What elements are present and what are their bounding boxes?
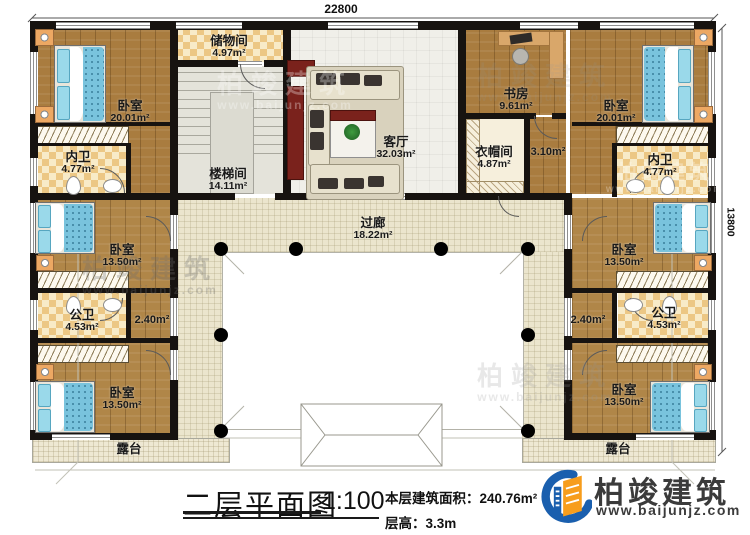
plant	[344, 124, 360, 140]
bed	[650, 381, 710, 433]
window	[328, 22, 418, 29]
floor-height-text: 层高：3.3m	[385, 512, 456, 532]
corridor-area-240-left: 2.40m²	[135, 314, 170, 326]
room-label-bath-mid-left: 公卫4.53m²	[65, 308, 98, 334]
wall	[458, 21, 466, 200]
wall	[264, 60, 283, 67]
sofa-cushion	[340, 73, 360, 85]
sink	[103, 298, 122, 312]
nightstand	[694, 255, 712, 271]
room-label-terrace-right: 露台	[605, 442, 630, 456]
title-underline	[183, 517, 379, 519]
column	[434, 242, 448, 256]
plan-scale: 1:100	[322, 487, 385, 516]
wardrobe-strip	[35, 345, 129, 363]
bed	[54, 45, 106, 123]
wardrobe-strip	[616, 345, 711, 363]
dimension-right: 13800	[725, 207, 737, 236]
wall	[126, 143, 131, 197]
room-label-cloakroom: 衣帽间4.87m²	[475, 145, 513, 171]
room-label-study: 书房9.61m²	[499, 87, 532, 113]
title-underline	[183, 511, 321, 514]
wall	[30, 193, 172, 200]
sink	[626, 179, 645, 193]
door-opening	[170, 298, 178, 336]
room-label-terrace-left: 露台	[116, 442, 141, 456]
wall	[126, 291, 131, 343]
column	[521, 424, 535, 438]
nightstand	[36, 364, 54, 380]
wall	[572, 338, 716, 343]
sofa-cushion	[344, 178, 364, 189]
wall	[572, 288, 716, 293]
column	[289, 242, 303, 256]
column	[214, 328, 228, 342]
room-label-bedroom-mid-right: 卧室13.50m²	[604, 243, 643, 269]
desk-chair	[512, 48, 529, 65]
column	[214, 242, 228, 256]
wall	[178, 60, 238, 67]
corridor-gallery	[522, 252, 568, 442]
wall	[30, 288, 172, 293]
bed	[35, 381, 95, 433]
room-label-bath-top-right: 内卫4.77m²	[643, 153, 676, 179]
wall	[612, 291, 617, 343]
floor-plan-canvas: 柏竣建筑 www.baijunjz.com 柏竣建筑 www.baijunjz.…	[0, 0, 750, 535]
window	[520, 22, 578, 29]
window	[176, 22, 242, 29]
door-opening	[170, 350, 178, 380]
nightstand	[35, 29, 54, 46]
table-runner	[330, 110, 376, 121]
door-opening	[170, 215, 178, 249]
column	[521, 242, 535, 256]
room-label-bedroom-top-right: 卧室20.01m²	[596, 99, 635, 125]
room-label-bedroom-bottom-right: 卧室13.50m²	[604, 383, 643, 409]
nightstand	[36, 255, 54, 271]
desk	[549, 31, 564, 79]
window	[30, 300, 38, 330]
room-label-storage: 储物间4.97m²	[210, 34, 248, 60]
corridor-area-240-right: 2.40m²	[571, 314, 606, 326]
wall	[30, 143, 130, 146]
window	[636, 434, 694, 440]
sofa-cushion	[364, 75, 382, 86]
logo-icon	[538, 468, 592, 526]
nightstand	[694, 364, 712, 380]
floor-area-text: 本层建筑面积：240.76m²	[385, 487, 537, 507]
room-label-bath-mid-right: 公卫4.53m²	[647, 306, 680, 332]
wall	[30, 338, 172, 343]
column	[214, 424, 228, 438]
sofa-cushion	[310, 132, 324, 150]
logo-url: www.baijunjz.com	[596, 502, 741, 518]
room-label-bedroom-bottom-left: 卧室13.50m²	[102, 386, 141, 412]
toilet	[66, 176, 81, 195]
room-label-bath-top-left: 内卫4.77m²	[61, 150, 94, 176]
room-label-stairwell: 楼梯间14.11m²	[209, 167, 248, 193]
wall	[170, 21, 178, 193]
door-opening	[564, 215, 572, 249]
nightstand	[694, 29, 713, 46]
courtyard-void	[222, 252, 524, 430]
wall	[612, 143, 617, 197]
sofa-cushion	[316, 73, 336, 85]
corridor-gallery	[172, 252, 222, 442]
window	[52, 434, 110, 440]
window	[30, 158, 38, 186]
sofa-cushion	[310, 110, 324, 128]
bed	[653, 202, 711, 254]
window	[56, 22, 150, 29]
bed	[35, 202, 95, 254]
sofa-cushion	[368, 176, 384, 187]
nightstand	[694, 106, 713, 123]
sofa-cushion	[318, 178, 338, 189]
window	[708, 300, 716, 330]
corridor-area-310: 3.10m²	[531, 146, 566, 158]
wall	[405, 193, 566, 200]
door-opening	[564, 350, 572, 380]
room-label-bedroom-mid-left: 卧室13.50m²	[102, 243, 141, 269]
room-label-bedroom-top-left: 卧室20.01m²	[110, 99, 149, 125]
window	[30, 52, 38, 114]
dimension-top: 22800	[324, 2, 357, 16]
window	[600, 22, 694, 29]
bed	[642, 45, 694, 123]
wall	[524, 119, 530, 199]
room-label-gallery: 过廊18.22m²	[353, 216, 392, 242]
nightstand	[35, 106, 54, 123]
window	[708, 52, 716, 114]
window	[708, 158, 716, 186]
room-label-living: 客厅32.03m²	[376, 135, 415, 161]
column	[521, 328, 535, 342]
wall	[616, 143, 716, 146]
sink	[103, 179, 122, 193]
tv-cabinet	[287, 86, 304, 180]
sink	[624, 298, 643, 312]
wall	[172, 193, 235, 200]
